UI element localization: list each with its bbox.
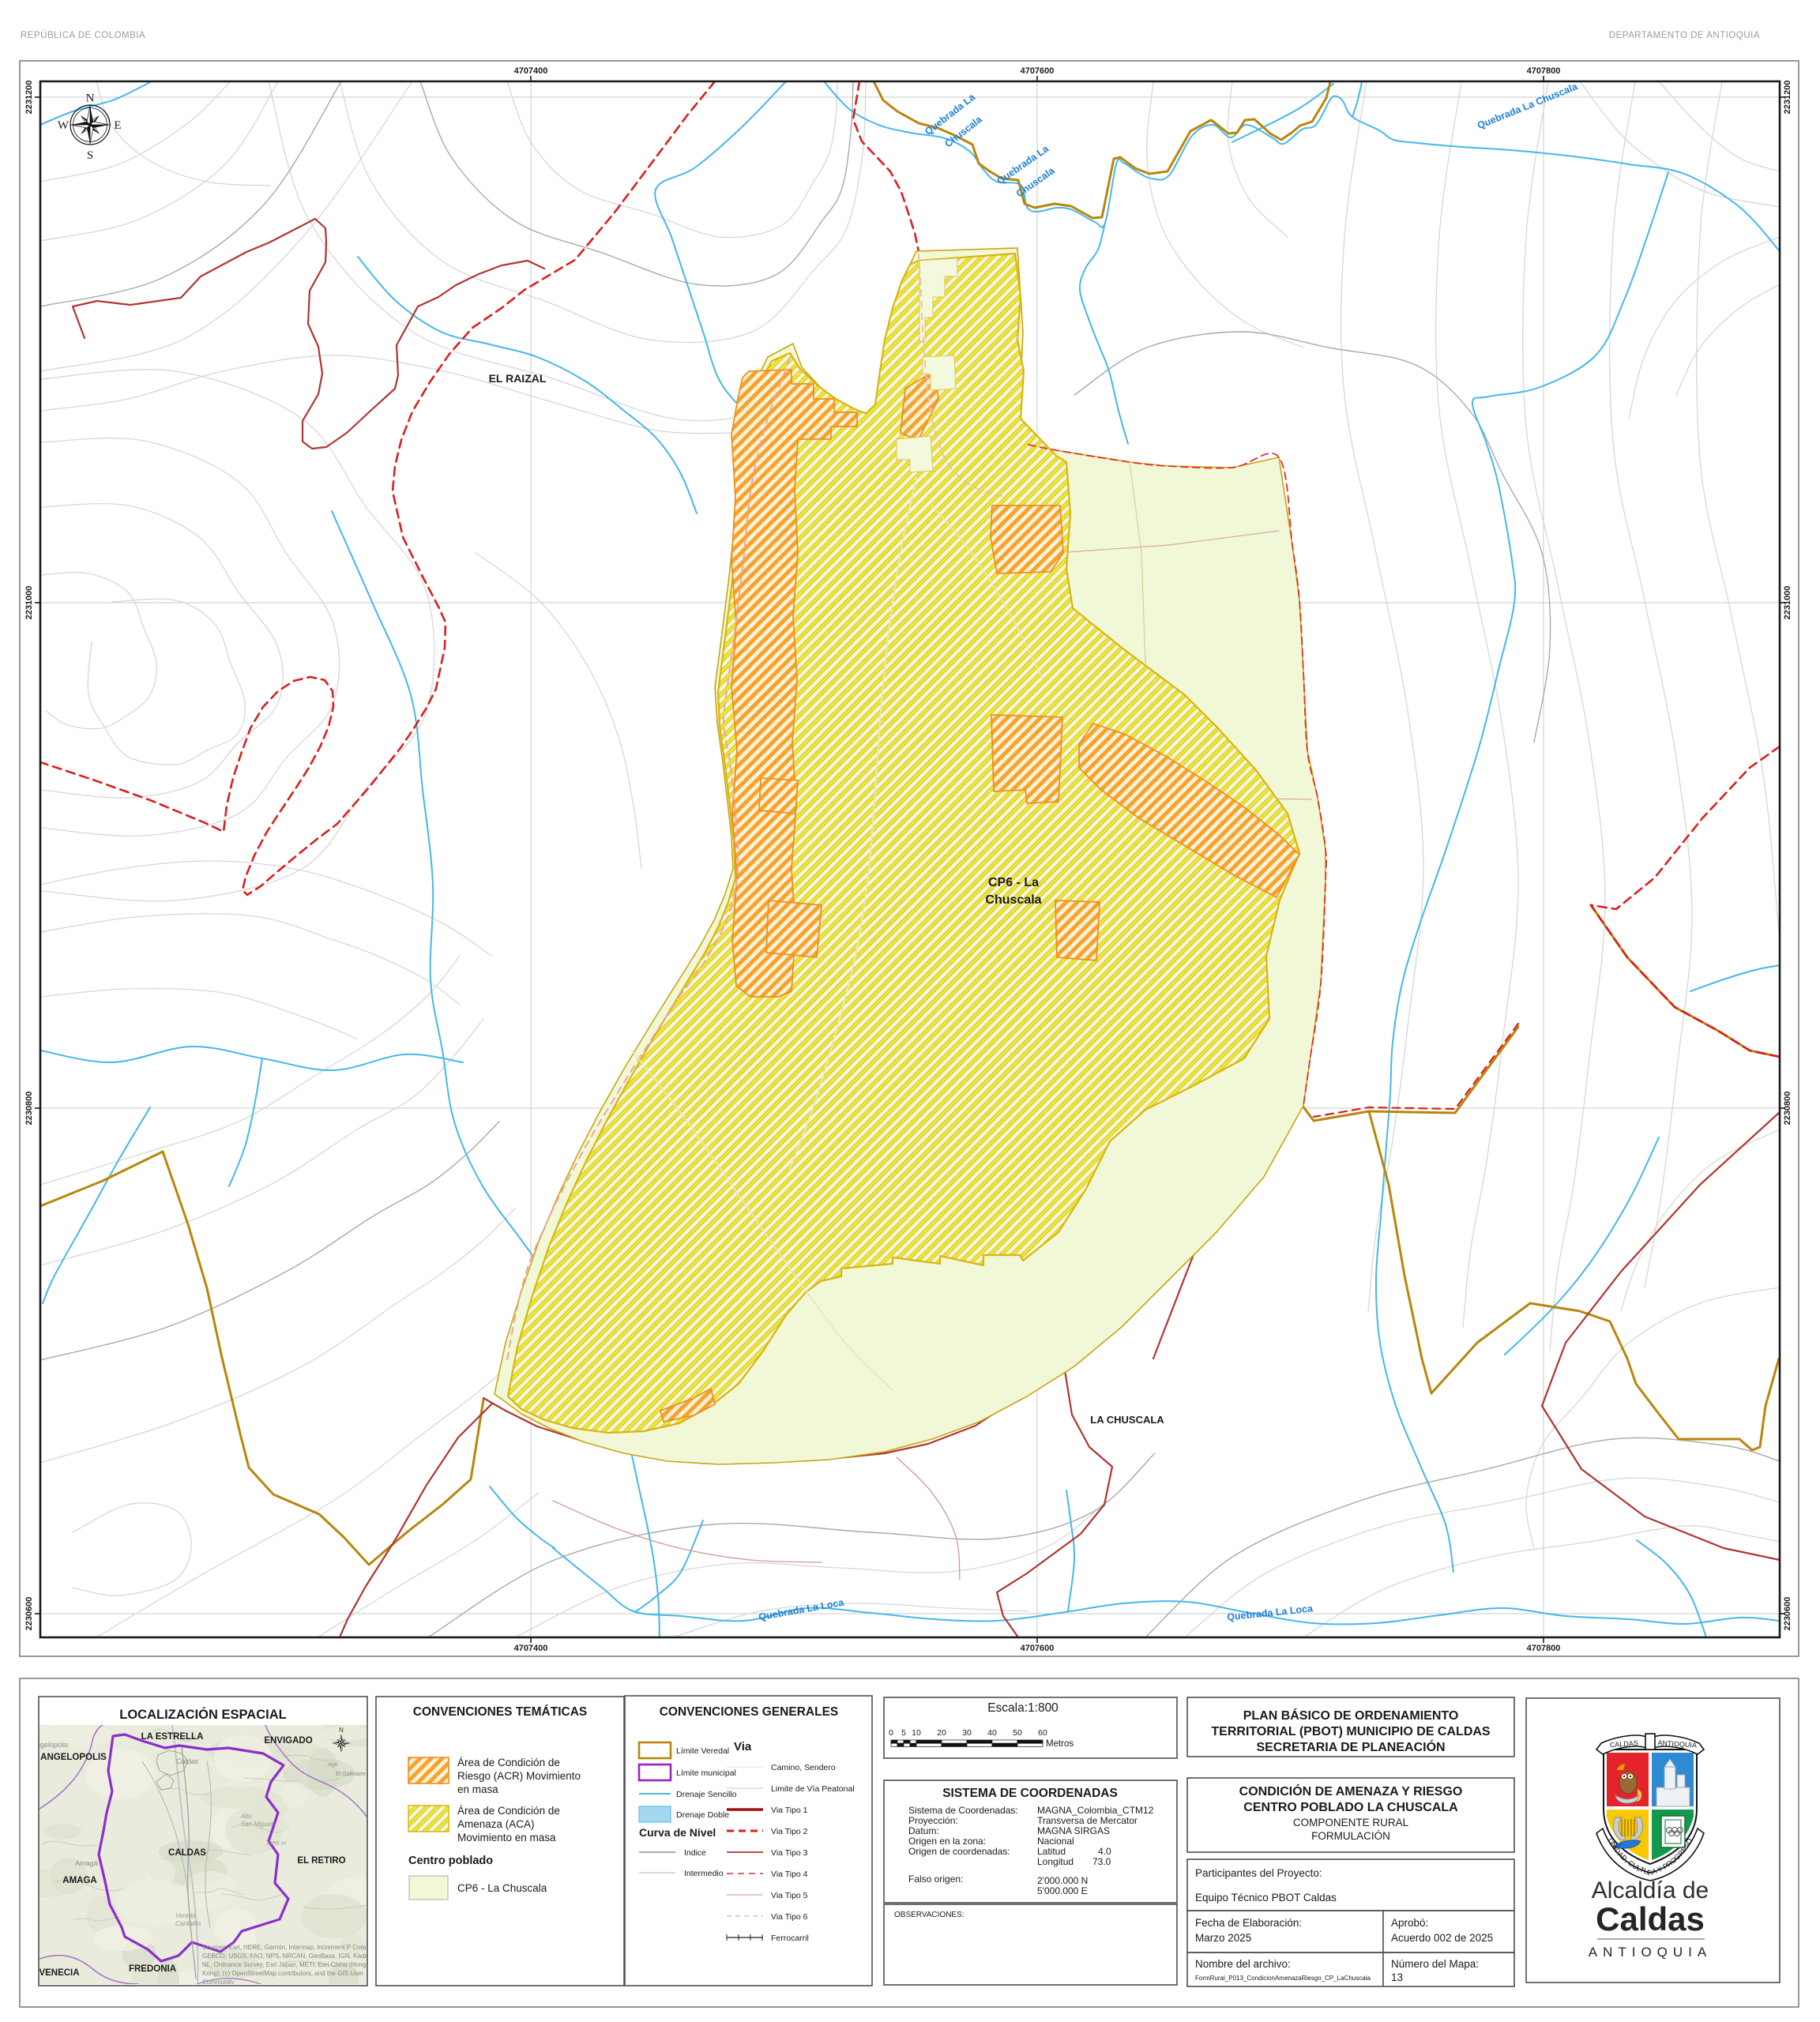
svg-text:Datum:: Datum: — [908, 1825, 939, 1836]
svg-text:Proyección:: Proyección: — [908, 1815, 958, 1826]
svg-text:Marzo 2025: Marzo 2025 — [1195, 1932, 1251, 1944]
svg-text:ANTIOQUIA: ANTIOQUIA — [1589, 1945, 1713, 1960]
svg-text:Equipo Técnico PBOT Caldas: Equipo Técnico PBOT Caldas — [1195, 1892, 1337, 1904]
svg-text:Aprobó:: Aprobó: — [1391, 1917, 1428, 1929]
svg-text:VENECIA: VENECIA — [39, 1968, 79, 1978]
svg-text:Área de Condición de: Área de Condición de — [457, 1805, 560, 1817]
svg-text:FORMULACIÓN: FORMULACIÓN — [1311, 1830, 1390, 1842]
svg-text:TERRITORIAL (PBOT) MUNICIPIO D: TERRITORIAL (PBOT) MUNICIPIO DE CALDAS — [1211, 1725, 1491, 1738]
svg-text:N: N — [86, 92, 95, 105]
svg-text:GEBCO, USGS, FAO, NPS, NRCAN,: GEBCO, USGS, FAO, NPS, NRCAN, GeoBase, I… — [202, 1952, 379, 1960]
svg-text:en masa: en masa — [457, 1783, 498, 1795]
svg-text:Nacional: Nacional — [1037, 1836, 1074, 1847]
svg-text:2230800: 2230800 — [24, 1092, 34, 1126]
svg-text:COMPONENTE RURAL: COMPONENTE RURAL — [1293, 1817, 1409, 1828]
svg-text:Cardalito: Cardalito — [175, 1920, 201, 1927]
svg-text:LOCALIZACIÓN ESPACIAL: LOCALIZACIÓN ESPACIAL — [119, 1707, 286, 1722]
svg-text:Via Tipo 6: Via Tipo 6 — [771, 1912, 808, 1922]
svg-text:CALDAS: CALDAS — [168, 1848, 206, 1858]
svg-text:Caldas: Caldas — [176, 1757, 199, 1765]
svg-text:CP6 - La Chuscala: CP6 - La Chuscala — [457, 1882, 547, 1894]
svg-text:FormRural_P013_CondicionAmenaz: FormRural_P013_CondicionAmenazaRiesgo_CP… — [1195, 1975, 1371, 1982]
svg-text:Indice: Indice — [684, 1848, 706, 1858]
svg-text:Via Tipo 3: Via Tipo 3 — [771, 1848, 808, 1858]
svg-text:PLAN BÁSICO DE ORDENAMIENTO: PLAN BÁSICO DE ORDENAMIENTO — [1243, 1708, 1459, 1723]
svg-text:Ferrocarril: Ferrocarril — [771, 1934, 809, 1943]
svg-text:Sources: Esri, HERE, Garmin, I: Sources: Esri, HERE, Garmin, Intermap, i… — [202, 1944, 370, 1951]
svg-text:Limite de Vía Peatonal: Limite de Vía Peatonal — [771, 1784, 855, 1794]
svg-text:LA ESTRELLA: LA ESTRELLA — [141, 1732, 204, 1742]
svg-text:EL RAIZAL: EL RAIZAL — [489, 372, 547, 385]
svg-text:N: N — [339, 1727, 344, 1734]
svg-text:Escala:1:800: Escala:1:800 — [987, 1701, 1059, 1715]
svg-text:Drenaje Doble: Drenaje Doble — [676, 1810, 729, 1820]
svg-text:4707800: 4707800 — [1527, 1644, 1561, 1653]
svg-text:REPÚBLICA DE COLOMBIA: REPÚBLICA DE COLOMBIA — [21, 30, 145, 40]
svg-text:4707800: 4707800 — [1527, 66, 1561, 76]
svg-text:Origen de coordenadas:: Origen de coordenadas: — [908, 1846, 1010, 1857]
svg-text:2231200: 2231200 — [1783, 81, 1792, 115]
svg-text:Falso origen:: Falso origen: — [908, 1874, 963, 1885]
svg-text:OBSERVACIONES:: OBSERVACIONES: — [894, 1911, 965, 1919]
svg-text:Número del Mapa:: Número del Mapa: — [1391, 1958, 1479, 1970]
svg-text:Chuscala: Chuscala — [985, 893, 1041, 907]
svg-text:2230800: 2230800 — [1783, 1092, 1792, 1126]
svg-text:ENVIGADO: ENVIGADO — [264, 1736, 312, 1746]
svg-text:NL, Ordnance Survey, Esri Japa: NL, Ordnance Survey, Esri Japan, METI, E… — [202, 1961, 367, 1968]
svg-text:Vereda: Vereda — [175, 1912, 196, 1919]
svg-text:Área de Condición de: Área de Condición de — [457, 1757, 560, 1768]
svg-text:Via Tipo 1: Via Tipo 1 — [771, 1806, 808, 1815]
svg-text:Camino, Sendero: Camino, Sendero — [771, 1763, 836, 1772]
svg-text:Transversa de Mercator: Transversa de Mercator — [1037, 1815, 1137, 1826]
svg-text:Metros: Metros — [1046, 1739, 1074, 1749]
svg-text:DEPARTAMENTO DE ANTIOQUIA: DEPARTAMENTO DE ANTIOQUIA — [1609, 31, 1760, 40]
svg-text:S: S — [87, 149, 93, 162]
svg-text:Origen en la zona:: Origen en la zona: — [908, 1836, 986, 1847]
svg-text:Amagá: Amagá — [75, 1859, 98, 1867]
svg-text:AMAGA: AMAGA — [62, 1876, 96, 1885]
svg-text:El Gallinazo: El Gallinazo — [336, 1772, 365, 1777]
svg-text:MAGNA_Colombia_CTM12: MAGNA_Colombia_CTM12 — [1037, 1805, 1154, 1816]
svg-text:4707400: 4707400 — [514, 1644, 548, 1653]
svg-text:Participantes del Proyecto:: Participantes del Proyecto: — [1195, 1867, 1322, 1879]
svg-text:73.0: 73.0 — [1092, 1856, 1111, 1867]
svg-text:5: 5 — [901, 1728, 906, 1738]
svg-text:Alto: Alto — [240, 1813, 252, 1820]
svg-text:CONVENCIONES GENERALES: CONVENCIONES GENERALES — [660, 1705, 839, 1719]
svg-text:MAGNA SIRGAS: MAGNA SIRGAS — [1037, 1825, 1110, 1836]
svg-text:10: 10 — [912, 1728, 921, 1738]
svg-text:Límite Veredal: Límite Veredal — [676, 1746, 729, 1756]
svg-text:FREDONIA: FREDONIA — [129, 1964, 176, 1974]
svg-text:Latitud: Latitud — [1037, 1846, 1066, 1857]
svg-text:Longitud: Longitud — [1037, 1856, 1074, 1867]
svg-text:4.0: 4.0 — [1098, 1846, 1111, 1857]
svg-text:Amenaza (ACA): Amenaza (ACA) — [457, 1818, 535, 1830]
svg-text:Drenaje Sencillo: Drenaje Sencillo — [676, 1790, 737, 1799]
svg-text:2231000: 2231000 — [1783, 586, 1792, 620]
svg-text:CONVENCIONES TEMÁTICAS: CONVENCIONES TEMÁTICAS — [413, 1705, 587, 1719]
svg-text:CONDICIÓN DE AMENAZA Y RIESGO: CONDICIÓN DE AMENAZA Y RIESGO — [1239, 1783, 1463, 1798]
svg-text:San Miguel: San Miguel — [241, 1821, 273, 1828]
svg-text:CP6 - La: CP6 - La — [988, 876, 1039, 889]
svg-text:E: E — [114, 119, 121, 132]
svg-text:Caldas: Caldas — [1596, 1900, 1705, 1937]
svg-text:2231000: 2231000 — [24, 586, 34, 620]
svg-text:Centro poblado: Centro poblado — [408, 1855, 493, 1867]
svg-text:20: 20 — [937, 1728, 946, 1738]
svg-text:Sistema de Coordenadas:: Sistema de Coordenadas: — [908, 1805, 1018, 1816]
svg-text:Movimiento en masa: Movimiento en masa — [457, 1832, 556, 1843]
svg-text:ngelopolis: ngelopolis — [36, 1741, 69, 1749]
svg-text:EL RETIRO: EL RETIRO — [297, 1856, 345, 1866]
svg-text:Kong), (c) OpenStreetMap contr: Kong), (c) OpenStreetMap contributors, a… — [202, 1970, 363, 1977]
svg-text:Curva de Nivel: Curva de Nivel — [639, 1826, 716, 1839]
svg-text:Acuerdo 002 de 2025: Acuerdo 002 de 2025 — [1391, 1932, 1493, 1944]
svg-text:Via Tipo 5: Via Tipo 5 — [771, 1891, 808, 1900]
svg-text:Límite municipal: Límite municipal — [676, 1768, 736, 1778]
svg-text:30: 30 — [962, 1728, 972, 1738]
svg-text:Nombre del archivo:: Nombre del archivo: — [1195, 1958, 1291, 1970]
svg-text:CENTRO POBLADO LA CHUSCALA: CENTRO POBLADO LA CHUSCALA — [1243, 1801, 1458, 1814]
svg-text:40: 40 — [987, 1728, 997, 1738]
svg-text:2230600: 2230600 — [1783, 1597, 1792, 1631]
svg-text:Intermedio: Intermedio — [684, 1869, 724, 1878]
svg-text:50: 50 — [1013, 1728, 1022, 1738]
svg-text:Via: Via — [734, 1740, 752, 1753]
svg-text:Fecha de Elaboración:: Fecha de Elaboración: — [1195, 1917, 1302, 1929]
svg-text:LA CHUSCALA: LA CHUSCALA — [1090, 1414, 1164, 1426]
svg-text:3455 m: 3455 m — [266, 1840, 286, 1847]
svg-text:2231200: 2231200 — [24, 81, 34, 115]
svg-text:5'000.000 E: 5'000.000 E — [1037, 1885, 1088, 1896]
svg-text:Riesgo (ACR) Movimiento: Riesgo (ACR) Movimiento — [457, 1770, 581, 1782]
svg-text:2230600: 2230600 — [24, 1597, 34, 1631]
svg-text:W: W — [58, 119, 70, 132]
svg-text:SECRETARIA DE PLANEACIÓN: SECRETARIA DE PLANEACIÓN — [1256, 1739, 1445, 1754]
svg-text:2'000.000 N: 2'000.000 N — [1037, 1875, 1088, 1886]
svg-text:Via Tipo 4: Via Tipo 4 — [771, 1870, 808, 1879]
svg-text:4707400: 4707400 — [514, 66, 548, 76]
svg-text:4707600: 4707600 — [1021, 66, 1055, 76]
svg-text:13: 13 — [1391, 1971, 1403, 1983]
svg-text:Ago: Ago — [327, 1762, 338, 1768]
svg-text:SISTEMA DE COORDENADAS: SISTEMA DE COORDENADAS — [942, 1787, 1118, 1800]
svg-text:Via Tipo 2: Via Tipo 2 — [771, 1827, 808, 1836]
svg-text:4707600: 4707600 — [1021, 1644, 1055, 1653]
svg-text:60: 60 — [1038, 1728, 1047, 1738]
svg-text:0: 0 — [889, 1728, 893, 1738]
svg-text:ANGELOPOLIS: ANGELOPOLIS — [40, 1753, 107, 1762]
